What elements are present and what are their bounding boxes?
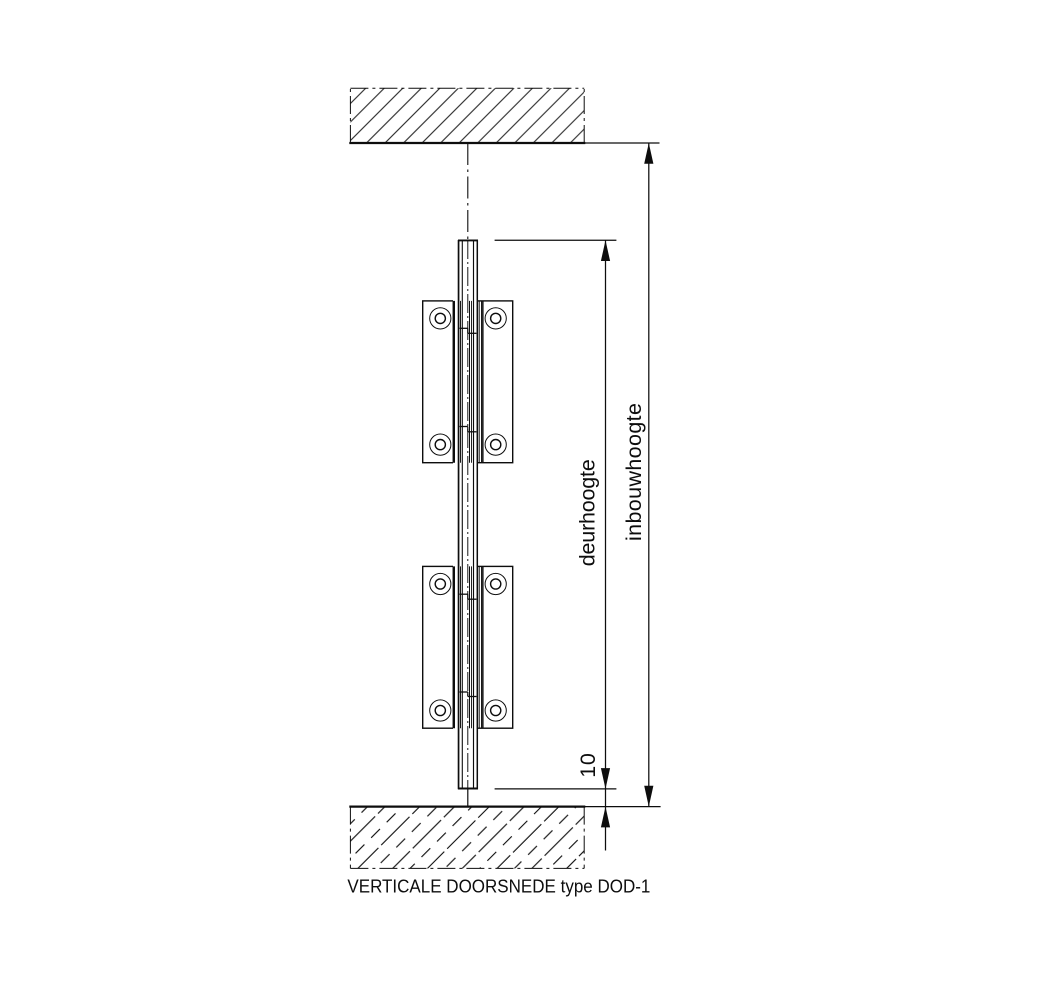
svg-text:10: 10 [576, 753, 600, 778]
svg-text:VERTICALE DOORSNEDE type DOD-1: VERTICALE DOORSNEDE type DOD-1 [347, 876, 650, 897]
svg-text:deurhoogte: deurhoogte [576, 459, 600, 566]
svg-text:inbouwhoogte: inbouwhoogte [622, 403, 646, 541]
